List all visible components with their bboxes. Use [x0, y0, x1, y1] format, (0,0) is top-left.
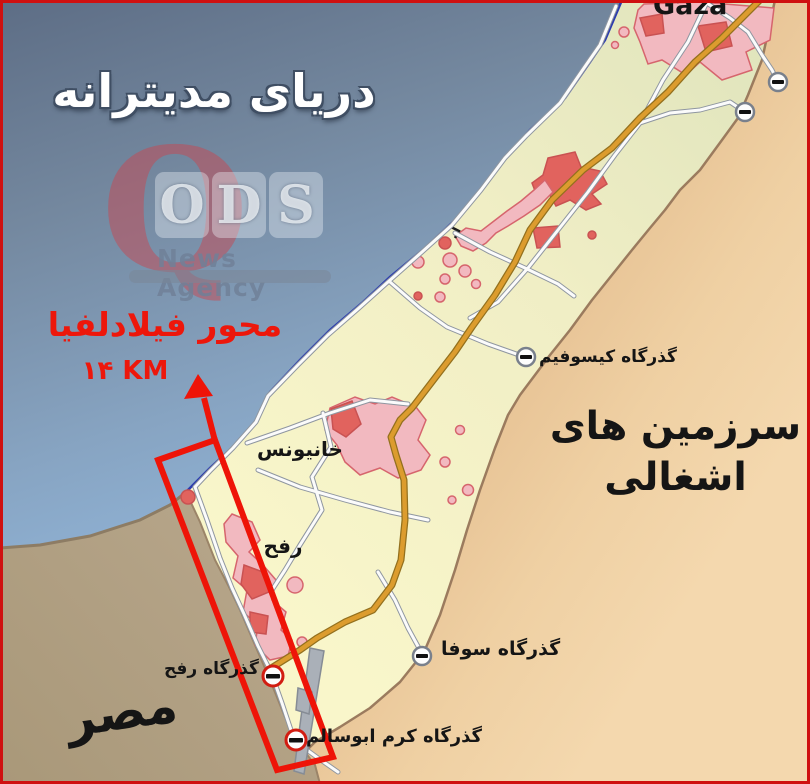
- crossing-icon-sufa: [413, 647, 431, 665]
- crossing-icon-kerem-abu-salem: [286, 730, 306, 750]
- map-canvas: Q O D S News Agency دریای مدیترانه محور …: [0, 0, 810, 784]
- crossing-icon-northeast-1: [736, 103, 754, 121]
- kissufim-crossing-label: گذرگاه کیسوفیم: [539, 347, 677, 367]
- occupied-territories-line1: سرزمین های: [550, 404, 801, 449]
- occupied-territories-line2: اشغالی: [604, 455, 746, 500]
- occupied-territories-label: سرزمین های اشغالی: [548, 402, 803, 503]
- philadelphi-corridor-label: محور فیلادلفیا: [45, 305, 285, 344]
- rafah-crossing-label: گذرگاه رفح: [164, 659, 259, 679]
- corridor-arrow-line: [204, 398, 215, 441]
- crossing-icon-kissufim: [517, 348, 535, 366]
- crossing-icon-northeast-2: [769, 73, 787, 91]
- corridor-length-label: ۱۴ KM: [55, 356, 195, 386]
- crossing-icon-rafah: [263, 666, 283, 686]
- sufa-crossing-label: گذرگاه سوفا: [441, 638, 560, 660]
- kerem-abu-salem-crossing-label: گذرگاه کرم ابوسالم: [306, 726, 482, 747]
- gaza-city-label: Gaza: [653, 0, 727, 21]
- rafah-city-label: رفح: [253, 534, 313, 558]
- khan-younis-label: خانیونس: [252, 437, 348, 461]
- mediterranean-sea-label: دریای مدیترانه: [18, 64, 410, 118]
